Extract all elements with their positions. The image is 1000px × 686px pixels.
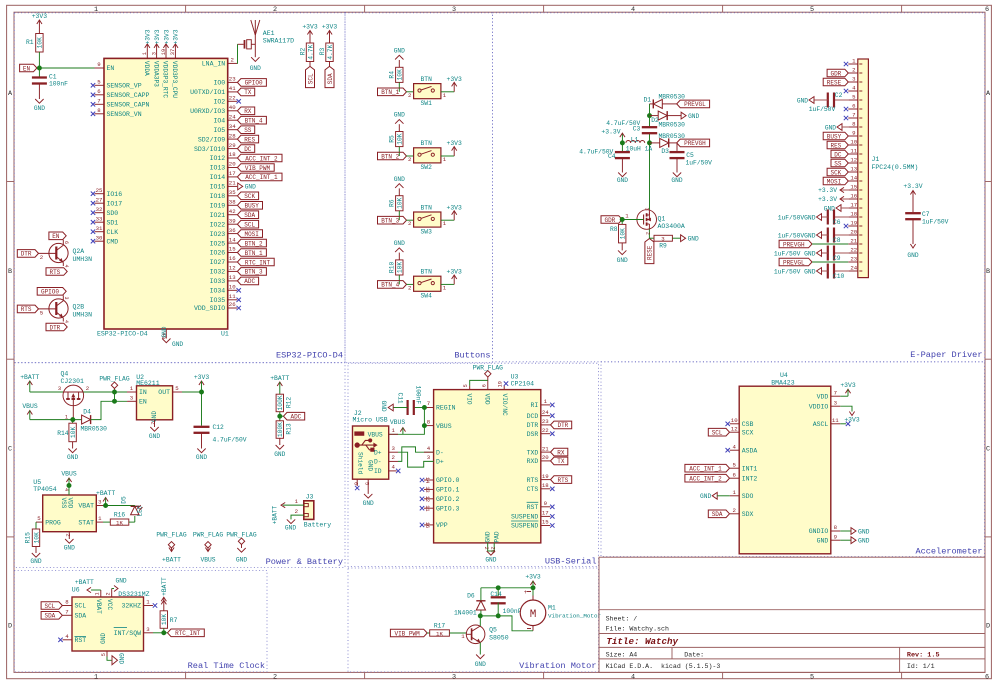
svg-text:12: 12	[731, 425, 738, 432]
svg-text:D+: D+	[374, 449, 382, 456]
svg-text:IN: IN	[139, 389, 147, 396]
svg-text:19: 19	[498, 381, 504, 387]
svg-text:RTS: RTS	[527, 477, 539, 484]
svg-text:SCL: SCL	[44, 603, 55, 610]
svg-text:DSR: DSR	[527, 431, 539, 438]
svg-text:GND: GND	[64, 545, 75, 552]
svg-text:1uF/50V GND: 1uF/50V GND	[774, 268, 816, 275]
svg-text:GND: GND	[485, 557, 496, 564]
svg-text:Q1: Q1	[658, 215, 666, 222]
svg-text:VBUS: VBUS	[22, 403, 38, 410]
svg-text:6: 6	[732, 471, 736, 478]
svg-text:GND: GND	[394, 240, 405, 247]
svg-text:GND: GND	[907, 252, 918, 259]
svg-text:19: 19	[542, 473, 549, 480]
svg-text:GND: GND	[149, 433, 160, 440]
svg-text:4: 4	[852, 84, 856, 91]
svg-text:PROG: PROG	[45, 519, 61, 526]
svg-text:5: 5	[175, 385, 179, 392]
svg-text:SW2: SW2	[421, 164, 433, 171]
svg-text:BTN: BTN	[421, 204, 433, 211]
svg-text:VDDA3P3: VDDA3P3	[152, 61, 159, 87]
svg-text:Title: Watchy: Title: Watchy	[606, 636, 678, 647]
svg-text:+3V3: +3V3	[525, 574, 541, 581]
svg-text:SS: SS	[244, 127, 252, 134]
svg-text:2: 2	[295, 508, 299, 515]
svg-text:1: 1	[732, 489, 736, 496]
svg-text:AE1: AE1	[263, 30, 275, 37]
svg-text:VDD3P3_RTC: VDD3P3_RTC	[162, 61, 169, 98]
svg-text:26: 26	[229, 301, 236, 308]
svg-text:GPIO.2: GPIO.2	[436, 496, 460, 503]
svg-text:U0TXD/IO1: U0TXD/IO1	[190, 89, 225, 96]
svg-text:PAD: PAD	[494, 531, 501, 542]
svg-text:6: 6	[352, 482, 358, 485]
svg-text:VIB_PWM: VIB_PWM	[245, 165, 271, 172]
svg-text:10K: 10K	[70, 427, 77, 439]
svg-text:VPP: VPP	[436, 522, 448, 529]
svg-text:22: 22	[542, 427, 549, 434]
svg-text:AO3400A: AO3400A	[658, 223, 685, 230]
svg-text:+: +	[524, 589, 528, 596]
svg-text:Sheet: /: Sheet: /	[606, 615, 638, 622]
svg-text:R5: R5	[389, 135, 396, 143]
svg-text:RES: RES	[244, 136, 255, 143]
svg-text:27: 27	[96, 196, 103, 203]
svg-text:1: 1	[852, 57, 856, 64]
svg-text:22: 22	[850, 246, 857, 253]
svg-text:SDA: SDA	[712, 511, 723, 518]
svg-text:5: 5	[97, 79, 101, 86]
svg-text:U3: U3	[511, 374, 519, 381]
svg-text:VBUS: VBUS	[61, 471, 77, 478]
svg-text:2: 2	[644, 232, 650, 235]
svg-text:+3V3: +3V3	[163, 29, 170, 44]
svg-text:GND: GND	[172, 341, 183, 348]
svg-text:5: 5	[463, 384, 469, 387]
svg-text:2: 2	[64, 534, 70, 537]
svg-text:SCL: SCL	[712, 430, 723, 437]
svg-text:ACC_INT_1: ACC_INT_1	[245, 174, 278, 181]
svg-text:11: 11	[850, 147, 857, 154]
svg-text:15: 15	[542, 519, 549, 526]
svg-text:R4: R4	[389, 71, 396, 79]
svg-text:U1: U1	[221, 331, 229, 338]
svg-text:+3V3: +3V3	[447, 76, 463, 83]
svg-text:+BATT: +BATT	[161, 577, 168, 596]
svg-text:BMA423: BMA423	[771, 379, 795, 386]
svg-text:CLK: CLK	[107, 229, 119, 236]
svg-text:D6: D6	[467, 592, 475, 599]
svg-text:R15: R15	[25, 532, 32, 544]
svg-text:BTN_1: BTN_1	[381, 89, 399, 96]
svg-text:IO5: IO5	[213, 127, 225, 134]
svg-text:C9: C9	[833, 255, 841, 262]
svg-text:TX: TX	[244, 89, 252, 96]
svg-text:ADC: ADC	[244, 278, 255, 285]
svg-text:GND: GND	[617, 257, 628, 264]
svg-text:GND: GND	[700, 493, 711, 500]
svg-text:S8050: S8050	[489, 635, 509, 642]
svg-text:BTN: BTN	[421, 269, 433, 276]
svg-text:GND: GND	[688, 236, 699, 243]
svg-text:+BATT: +BATT	[162, 557, 181, 564]
svg-text:VDD3P3_CPU: VDD3P3_CPU	[171, 61, 178, 98]
svg-text:100K: 100K	[277, 395, 284, 410]
svg-text:CP2104: CP2104	[511, 381, 535, 388]
svg-text:CTS: CTS	[527, 486, 539, 493]
svg-text:SDA: SDA	[44, 613, 55, 620]
svg-text:C11: C11	[396, 393, 403, 404]
svg-text:IO0: IO0	[213, 80, 225, 87]
svg-text:3: 3	[852, 75, 856, 82]
svg-text:1: 1	[625, 213, 629, 220]
svg-text:R13: R13	[286, 423, 293, 435]
svg-text:42: 42	[229, 208, 236, 215]
svg-text:5: 5	[37, 515, 41, 522]
svg-text:GND: GND	[394, 112, 405, 119]
svg-text:IO17: IO17	[107, 200, 123, 207]
svg-text:EN: EN	[139, 399, 147, 406]
svg-text:DC: DC	[834, 151, 842, 158]
svg-text:16: 16	[850, 192, 857, 199]
svg-text:SCK: SCK	[244, 193, 255, 200]
svg-text:VDDA: VDDA	[143, 61, 150, 76]
svg-text:IO4: IO4	[213, 117, 225, 124]
svg-text:GND: GND	[485, 531, 492, 542]
svg-text:10K: 10K	[161, 614, 168, 626]
svg-text:Vibration_Motor: Vibration_Motor	[548, 613, 601, 620]
svg-text:IO21: IO21	[210, 212, 226, 219]
svg-text:BTN_1: BTN_1	[245, 250, 263, 257]
svg-text:GNDIO: GNDIO	[809, 528, 829, 535]
svg-text:1K: 1K	[436, 630, 443, 637]
svg-text:MOSI: MOSI	[827, 178, 841, 185]
svg-text:10K: 10K	[33, 532, 40, 544]
svg-text:3: 3	[391, 445, 395, 452]
svg-text:+BATT: +BATT	[270, 375, 289, 382]
svg-text:2: 2	[40, 254, 44, 261]
svg-text:BTN_3: BTN_3	[245, 269, 263, 276]
svg-text:PREVGL: PREVGL	[783, 259, 805, 266]
svg-text:GND: GND	[161, 326, 168, 337]
svg-text:VIO/NC: VIO/NC	[501, 394, 508, 417]
svg-text:R12: R12	[286, 397, 293, 409]
svg-text:GND: GND	[671, 177, 682, 184]
svg-text:25: 25	[96, 187, 103, 194]
svg-text:5: 5	[810, 6, 814, 14]
svg-text:+3V3: +3V3	[154, 29, 161, 44]
svg-text:23: 23	[542, 418, 549, 425]
svg-text:VIB_PWM: VIB_PWM	[394, 630, 420, 637]
svg-text:1: 1	[146, 599, 150, 606]
svg-text:1: 1	[295, 498, 299, 505]
svg-text:6: 6	[97, 88, 101, 95]
svg-text:SDX: SDX	[742, 511, 754, 518]
svg-text:3: 3	[151, 52, 157, 55]
svg-text:3: 3	[643, 208, 649, 211]
svg-text:RTC_INT: RTC_INT	[245, 259, 271, 266]
svg-text:RTS: RTS	[557, 477, 568, 484]
svg-text:GND: GND	[688, 113, 699, 120]
svg-text:M1: M1	[548, 605, 556, 612]
svg-text:9: 9	[834, 533, 838, 540]
svg-text:7: 7	[834, 389, 837, 396]
svg-text:TP4054: TP4054	[33, 486, 57, 493]
svg-text:VSS: VSS	[60, 498, 67, 509]
svg-text:2: 2	[391, 454, 395, 461]
svg-text:+3V3: +3V3	[447, 269, 463, 276]
svg-text:LED: LED	[137, 505, 144, 516]
svg-text:1: 1	[544, 398, 548, 405]
svg-text:Q5: Q5	[489, 627, 497, 634]
svg-text:13: 13	[850, 165, 857, 172]
svg-text:GND: GND	[67, 454, 78, 461]
svg-text:17: 17	[229, 170, 236, 177]
svg-text:L1: L1	[631, 136, 639, 143]
svg-text:SDA: SDA	[327, 73, 334, 84]
svg-text:TXD: TXD	[527, 449, 539, 456]
svg-text:C14: C14	[490, 591, 502, 598]
svg-text:30: 30	[96, 234, 103, 241]
svg-text:RXD: RXD	[527, 458, 539, 465]
svg-text:U6: U6	[72, 587, 80, 594]
svg-text:SENSOR_VN: SENSOR_VN	[107, 111, 142, 118]
svg-text:GND: GND	[825, 124, 836, 131]
svg-text:GDR: GDR	[830, 70, 841, 77]
svg-text:9: 9	[852, 129, 856, 136]
svg-text:VBUS: VBUS	[368, 432, 383, 439]
svg-text:5: 5	[40, 309, 44, 316]
svg-text:SCL: SCL	[244, 222, 255, 229]
svg-text:+3.3V: +3.3V	[601, 128, 620, 135]
svg-text:100nF: 100nF	[503, 608, 522, 615]
svg-text:DS3231MZ: DS3231MZ	[118, 591, 149, 598]
svg-text:SDA: SDA	[244, 212, 255, 219]
svg-text:37: 37	[170, 49, 176, 55]
svg-text:GND: GND	[196, 454, 207, 461]
svg-text:10K: 10K	[620, 228, 627, 240]
svg-text:21: 21	[229, 180, 236, 187]
svg-text:12: 12	[229, 265, 236, 272]
svg-text:SCL: SCL	[307, 73, 314, 84]
svg-text:1uF/50VGND: 1uF/50VGND	[778, 214, 816, 221]
svg-text:IO16: IO16	[107, 191, 123, 198]
svg-text:PWR_FLAG: PWR_FLAG	[473, 365, 503, 372]
svg-text:7: 7	[97, 98, 100, 105]
svg-text:SS: SS	[834, 160, 842, 167]
svg-text:7: 7	[65, 609, 68, 616]
svg-text:B: B	[986, 268, 990, 276]
svg-text:M: M	[530, 609, 537, 621]
svg-text:C7: C7	[922, 211, 930, 218]
svg-text:14: 14	[229, 236, 236, 243]
svg-text:VDD_SDIO: VDD_SDIO	[194, 305, 225, 312]
svg-text:VBAT: VBAT	[78, 503, 94, 510]
svg-text:+3.3V: +3.3V	[818, 196, 837, 203]
svg-text:R7: R7	[170, 617, 178, 624]
svg-text:24: 24	[850, 264, 857, 271]
svg-text:6: 6	[63, 241, 69, 244]
svg-text:IO27: IO27	[210, 259, 226, 266]
svg-text:11: 11	[424, 505, 430, 511]
svg-text:21: 21	[542, 445, 549, 452]
svg-text:8: 8	[834, 524, 838, 531]
svg-text:1: 1	[461, 633, 465, 640]
svg-text:MBR0530: MBR0530	[659, 93, 686, 100]
svg-text:C10: C10	[833, 273, 845, 280]
svg-text:21: 21	[850, 237, 857, 244]
svg-text:VCC: VCC	[106, 599, 113, 610]
svg-text:Vibration Motor: Vibration Motor	[519, 661, 596, 671]
svg-text:SD0: SD0	[107, 210, 119, 217]
svg-text:D3: D3	[661, 148, 669, 155]
svg-text:1: 1	[130, 385, 134, 392]
svg-text:10: 10	[850, 138, 857, 145]
svg-text:2: 2	[150, 422, 156, 425]
svg-text:39: 39	[229, 217, 236, 224]
svg-text:10K: 10K	[397, 133, 404, 145]
svg-text:D: D	[986, 623, 990, 631]
svg-text:RESE: RESE	[827, 79, 842, 86]
svg-text:4: 4	[63, 265, 69, 268]
svg-text:1uF/50V GND: 1uF/50V GND	[774, 250, 816, 257]
svg-text:GND: GND	[394, 176, 405, 183]
svg-text:VDD: VDD	[66, 498, 73, 509]
svg-text:8: 8	[97, 107, 101, 114]
svg-text:GND: GND	[394, 48, 405, 55]
svg-text:REGIN: REGIN	[436, 405, 456, 412]
svg-text:D5: D5	[121, 496, 128, 504]
svg-text:35: 35	[229, 189, 236, 196]
svg-text:SD1: SD1	[107, 219, 119, 226]
svg-text:10: 10	[731, 417, 738, 424]
svg-text:D-: D-	[436, 449, 444, 456]
svg-text:GND: GND	[617, 177, 628, 184]
svg-text:9: 9	[544, 500, 548, 507]
svg-text:Power & Battery: Power & Battery	[266, 557, 343, 567]
svg-text:19: 19	[850, 219, 857, 226]
svg-text:10K: 10K	[397, 69, 404, 81]
svg-text:4: 4	[732, 443, 736, 450]
svg-text:GND: GND	[858, 528, 870, 535]
svg-text:+3V3: +3V3	[322, 24, 338, 31]
svg-text:5: 5	[732, 461, 736, 468]
svg-text:R10: R10	[389, 262, 396, 274]
svg-text:4.7K: 4.7K	[307, 44, 314, 59]
svg-text:GND: GND	[858, 538, 870, 545]
svg-text:VDD: VDD	[817, 393, 829, 400]
svg-text:USB-Serial: USB-Serial	[545, 557, 597, 567]
svg-text:7: 7	[427, 400, 430, 407]
svg-text:GND: GND	[118, 653, 125, 664]
svg-text:14: 14	[850, 174, 857, 181]
svg-text:+3V3: +3V3	[447, 140, 463, 147]
svg-text:12: 12	[850, 156, 857, 163]
svg-text:R1: R1	[26, 39, 34, 46]
svg-text:SCL: SCL	[75, 603, 87, 610]
svg-text:DTR: DTR	[49, 324, 60, 331]
svg-text:IO33: IO33	[210, 278, 226, 285]
svg-text:SUSPEND: SUSPEND	[511, 514, 538, 521]
svg-text:5: 5	[852, 93, 856, 100]
svg-text:ID: ID	[374, 468, 382, 475]
svg-text:13: 13	[424, 486, 430, 492]
svg-text:5: 5	[363, 482, 369, 485]
svg-text:DTR: DTR	[557, 422, 568, 429]
svg-text:ESP32-PICO-D4: ESP32-PICO-D4	[97, 331, 148, 338]
svg-text:TX: TX	[557, 458, 565, 465]
svg-text:Size: A4: Size: A4	[606, 651, 638, 658]
svg-text:6: 6	[985, 673, 989, 681]
svg-text:1: 1	[391, 427, 395, 434]
svg-text:J1: J1	[872, 156, 880, 163]
svg-text:RST: RST	[75, 637, 87, 644]
svg-text:14: 14	[424, 477, 430, 483]
svg-text:ME6211: ME6211	[136, 380, 160, 387]
svg-text:U0RXD/IO3: U0RXD/IO3	[190, 108, 225, 115]
svg-text:3: 3	[58, 385, 62, 392]
svg-text:GND: GND	[817, 537, 829, 544]
svg-text:OUT: OUT	[158, 389, 170, 396]
svg-text:VBUS: VBUS	[436, 423, 452, 430]
svg-text:IO2: IO2	[213, 99, 225, 106]
svg-text:5: 5	[810, 673, 814, 681]
svg-text:KiCad E.D.A. kicad (5.1.5)-3: KiCad E.D.A. kicad (5.1.5)-3	[606, 663, 721, 670]
svg-text:+3V3: +3V3	[194, 374, 210, 381]
svg-text:C6: C6	[833, 219, 841, 226]
svg-text:SW1: SW1	[421, 100, 433, 107]
svg-text:17: 17	[542, 510, 549, 517]
svg-text:STAT: STAT	[78, 519, 94, 526]
svg-text:1K: 1K	[116, 519, 123, 526]
svg-text:3: 3	[98, 499, 102, 506]
svg-text:IO12: IO12	[210, 155, 226, 162]
svg-text:VIO: VIO	[465, 394, 472, 405]
svg-text:SUSPEND: SUSPEND	[511, 523, 538, 530]
svg-text:4: 4	[427, 445, 431, 452]
svg-text:2: 2	[483, 547, 489, 550]
svg-text:ASCL: ASCL	[813, 421, 829, 428]
svg-text:IO35: IO35	[210, 297, 226, 304]
svg-text:R17: R17	[434, 622, 446, 629]
svg-text:RST: RST	[527, 504, 539, 511]
svg-text:SD2/IO9: SD2/IO9	[198, 136, 225, 143]
svg-text:PWR_FLAG: PWR_FLAG	[156, 532, 186, 539]
svg-text:GND: GND	[250, 65, 261, 72]
svg-text:15: 15	[850, 183, 857, 190]
svg-text:UMH3N: UMH3N	[73, 256, 93, 263]
svg-text:6: 6	[481, 384, 487, 387]
svg-text:D+: D+	[436, 459, 444, 466]
svg-text:+3V3: +3V3	[173, 29, 180, 44]
svg-text:1N4001: 1N4001	[454, 610, 477, 617]
svg-text:C: C	[986, 446, 990, 454]
svg-text:+BATT: +BATT	[20, 374, 39, 381]
svg-text:8: 8	[427, 418, 431, 425]
svg-text:GND: GND	[34, 105, 45, 112]
svg-text:GPIO.3: GPIO.3	[436, 505, 460, 512]
svg-text:IO23: IO23	[210, 231, 226, 238]
svg-text:ASDA: ASDA	[742, 447, 758, 454]
svg-text:SENSOR_CAPN: SENSOR_CAPN	[107, 102, 150, 109]
svg-text:3: 3	[834, 399, 838, 406]
svg-text:+3.3V: +3.3V	[818, 187, 837, 194]
svg-text:24: 24	[542, 409, 549, 416]
svg-text:VDDIO: VDDIO	[809, 403, 829, 410]
svg-text:BTN_4: BTN_4	[381, 282, 399, 289]
svg-text:FPC24(0.5MM): FPC24(0.5MM)	[872, 164, 919, 171]
